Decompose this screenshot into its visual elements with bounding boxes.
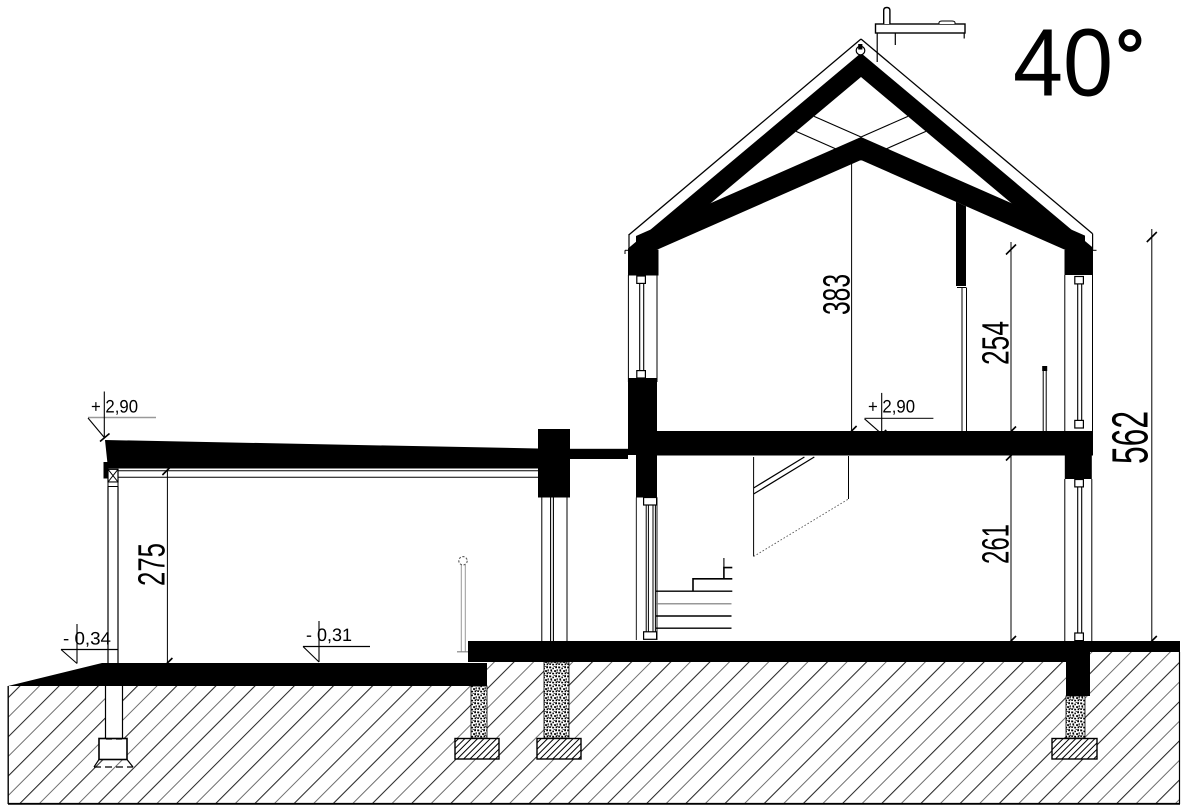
svg-text:562: 562 xyxy=(1102,411,1159,464)
svg-text:+ 2,90: + 2,90 xyxy=(91,397,138,417)
svg-text:- 0,31: - 0,31 xyxy=(306,625,352,645)
svg-text:261: 261 xyxy=(976,524,1018,564)
svg-text:383: 383 xyxy=(817,274,859,315)
svg-text:- 0,34: - 0,34 xyxy=(63,629,111,649)
svg-text:+ 2,90: + 2,90 xyxy=(868,397,915,417)
svg-text:254: 254 xyxy=(976,321,1018,365)
svg-text:275: 275 xyxy=(132,543,174,586)
svg-text:40: 40 xyxy=(1013,10,1113,117)
